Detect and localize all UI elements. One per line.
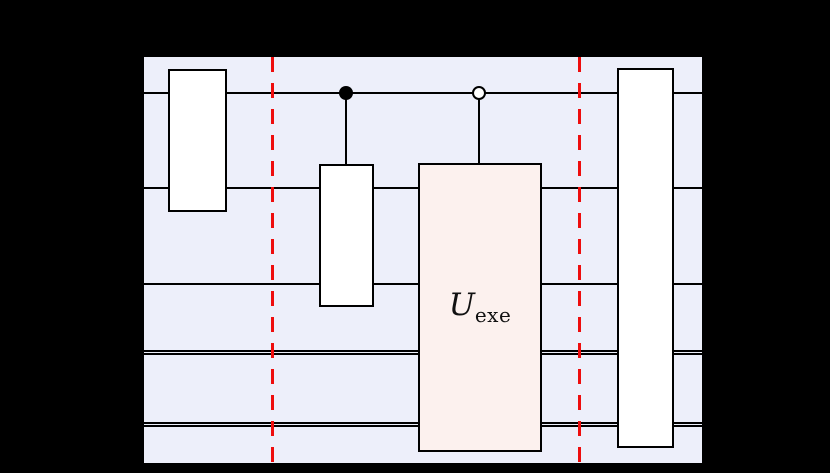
control-dot-filled (339, 86, 353, 100)
u-exe-label-subscript: exe (475, 303, 511, 327)
quantum-circuit-figure: Uexe (0, 0, 830, 473)
gate-box-2-controlled (319, 164, 374, 307)
control-line-open (478, 99, 480, 164)
barrier-dashed-line-2 (578, 57, 581, 472)
gate-box-3-final (617, 68, 674, 448)
gate-u-exe: Uexe (418, 163, 542, 452)
control-dot-open (472, 86, 486, 100)
control-line-filled (345, 93, 347, 165)
gate-box-1 (168, 69, 227, 212)
u-exe-label-base: U (449, 287, 475, 323)
barrier-dashed-line-1 (271, 57, 274, 472)
u-exe-label: Uexe (449, 290, 512, 325)
